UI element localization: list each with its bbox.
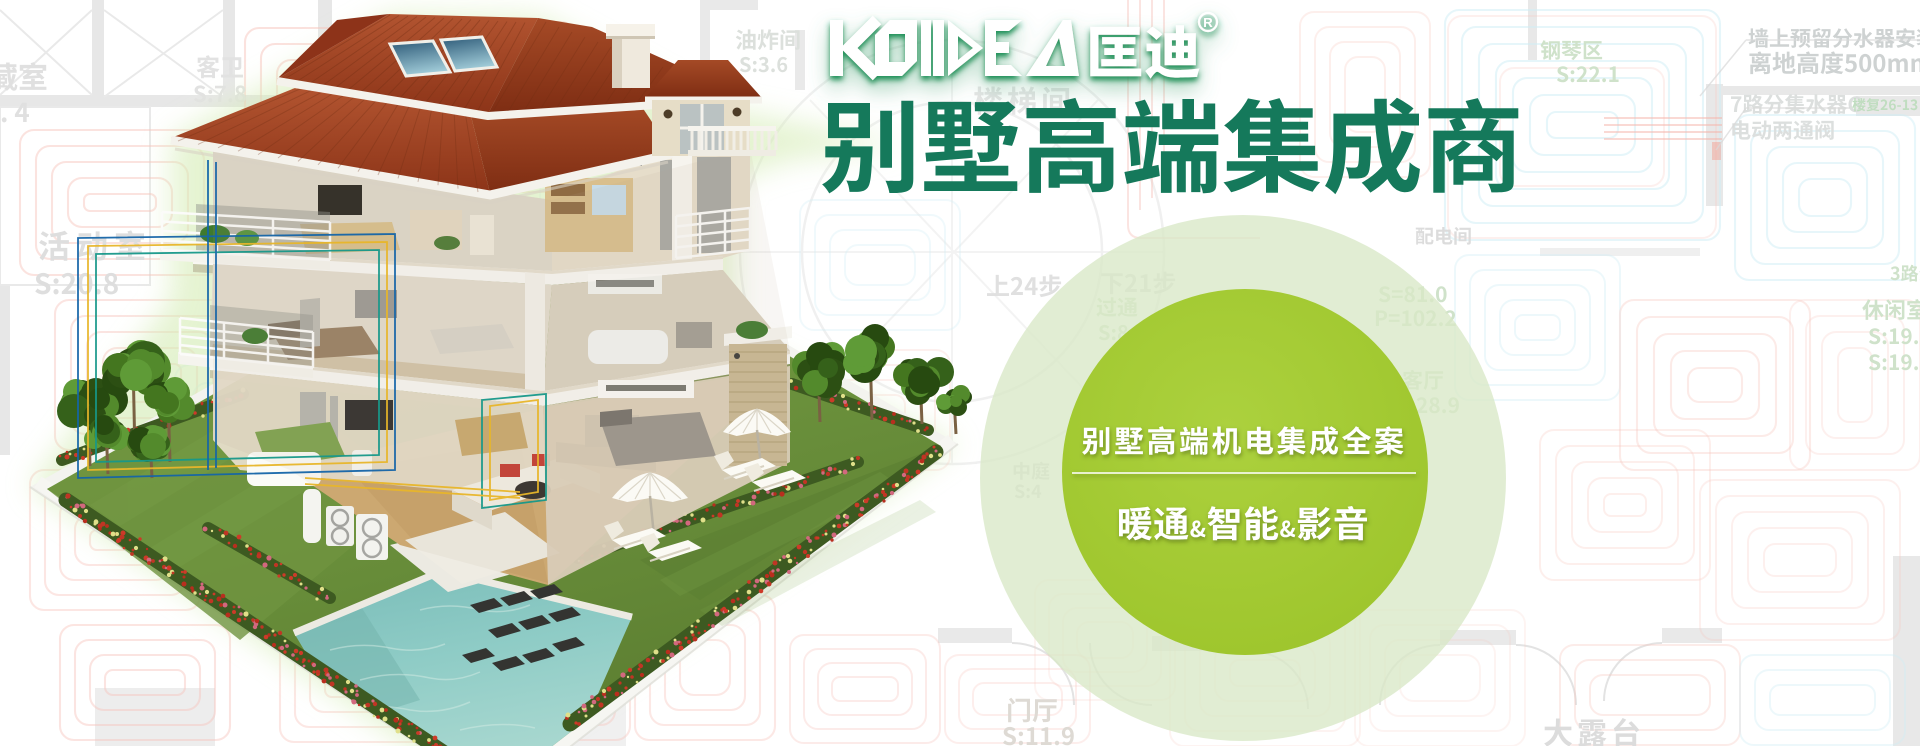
svg-text:R: R [1203,15,1213,30]
